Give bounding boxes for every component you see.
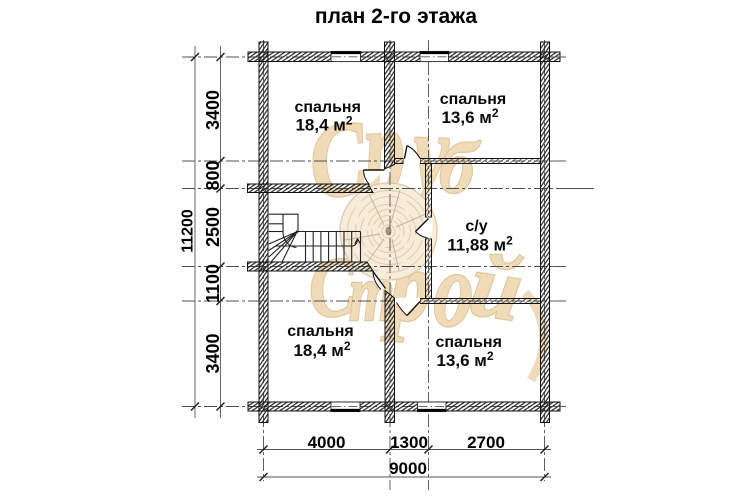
svg-text:спальня: спальня: [287, 323, 353, 340]
svg-text:18,4 м2: 18,4 м2: [293, 339, 350, 360]
svg-text:13,6 м2: 13,6 м2: [441, 106, 498, 127]
svg-text:800: 800: [203, 160, 223, 190]
svg-text:1300: 1300: [390, 433, 428, 452]
svg-text:11,88 м2: 11,88 м2: [447, 234, 513, 255]
svg-text:с/у: с/у: [465, 218, 487, 235]
svg-text:13,6 м2: 13,6 м2: [436, 349, 493, 370]
svg-text:3400: 3400: [203, 90, 223, 130]
svg-text:18,4 м2: 18,4 м2: [295, 114, 352, 135]
svg-text:2700: 2700: [467, 433, 505, 452]
svg-text:2500: 2500: [203, 207, 223, 247]
svg-text:4000: 4000: [308, 433, 346, 452]
svg-text:11200: 11200: [180, 209, 197, 253]
svg-text:9000: 9000: [389, 459, 427, 478]
svg-text:3400: 3400: [203, 333, 223, 373]
svg-text:1100: 1100: [203, 264, 223, 303]
svg-text:план 2-го этажа: план 2-го этажа: [315, 5, 477, 28]
